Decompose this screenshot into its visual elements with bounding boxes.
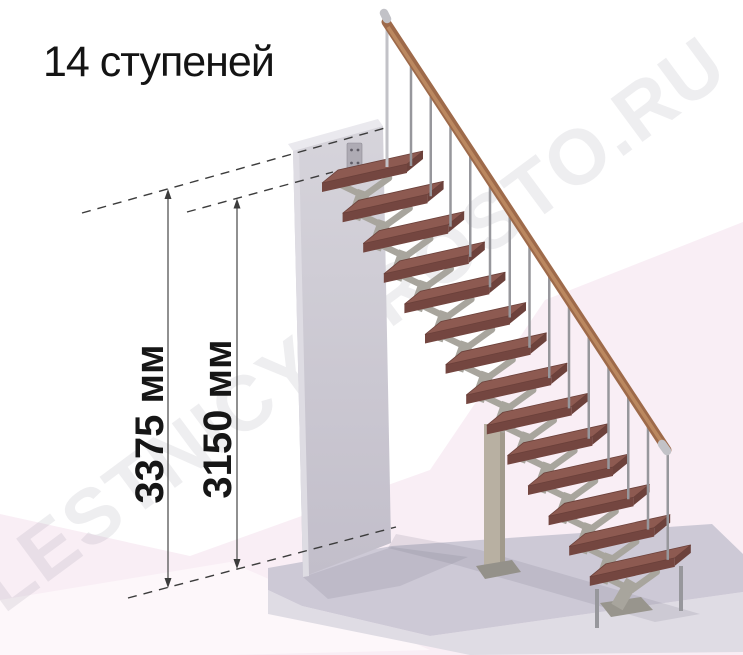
bracket-hole — [357, 162, 360, 165]
support-column — [484, 424, 500, 568]
handrail-top-cap — [384, 13, 387, 19]
dim-arrow — [165, 189, 172, 199]
dim-arrow — [234, 199, 241, 209]
bracket-hole — [350, 162, 353, 165]
handrail-end-cap — [662, 444, 667, 451]
bracket-hole — [350, 149, 353, 152]
support-column-side — [500, 423, 505, 568]
diagram-canvas: LESTNICY-PROSTO.RU 3375 мм 3150 мм — [0, 0, 743, 655]
staircase-diagram: LESTNICY-PROSTO.RU 3375 мм 3150 мм 14 ст… — [0, 0, 743, 655]
wall-front — [293, 126, 391, 577]
dimension-label-step-height: 3150 мм — [196, 339, 240, 498]
dimension-label-total-height: 3375 мм — [128, 344, 172, 503]
bracket-hole — [357, 149, 360, 152]
page-title: 14 ступеней — [43, 38, 274, 87]
